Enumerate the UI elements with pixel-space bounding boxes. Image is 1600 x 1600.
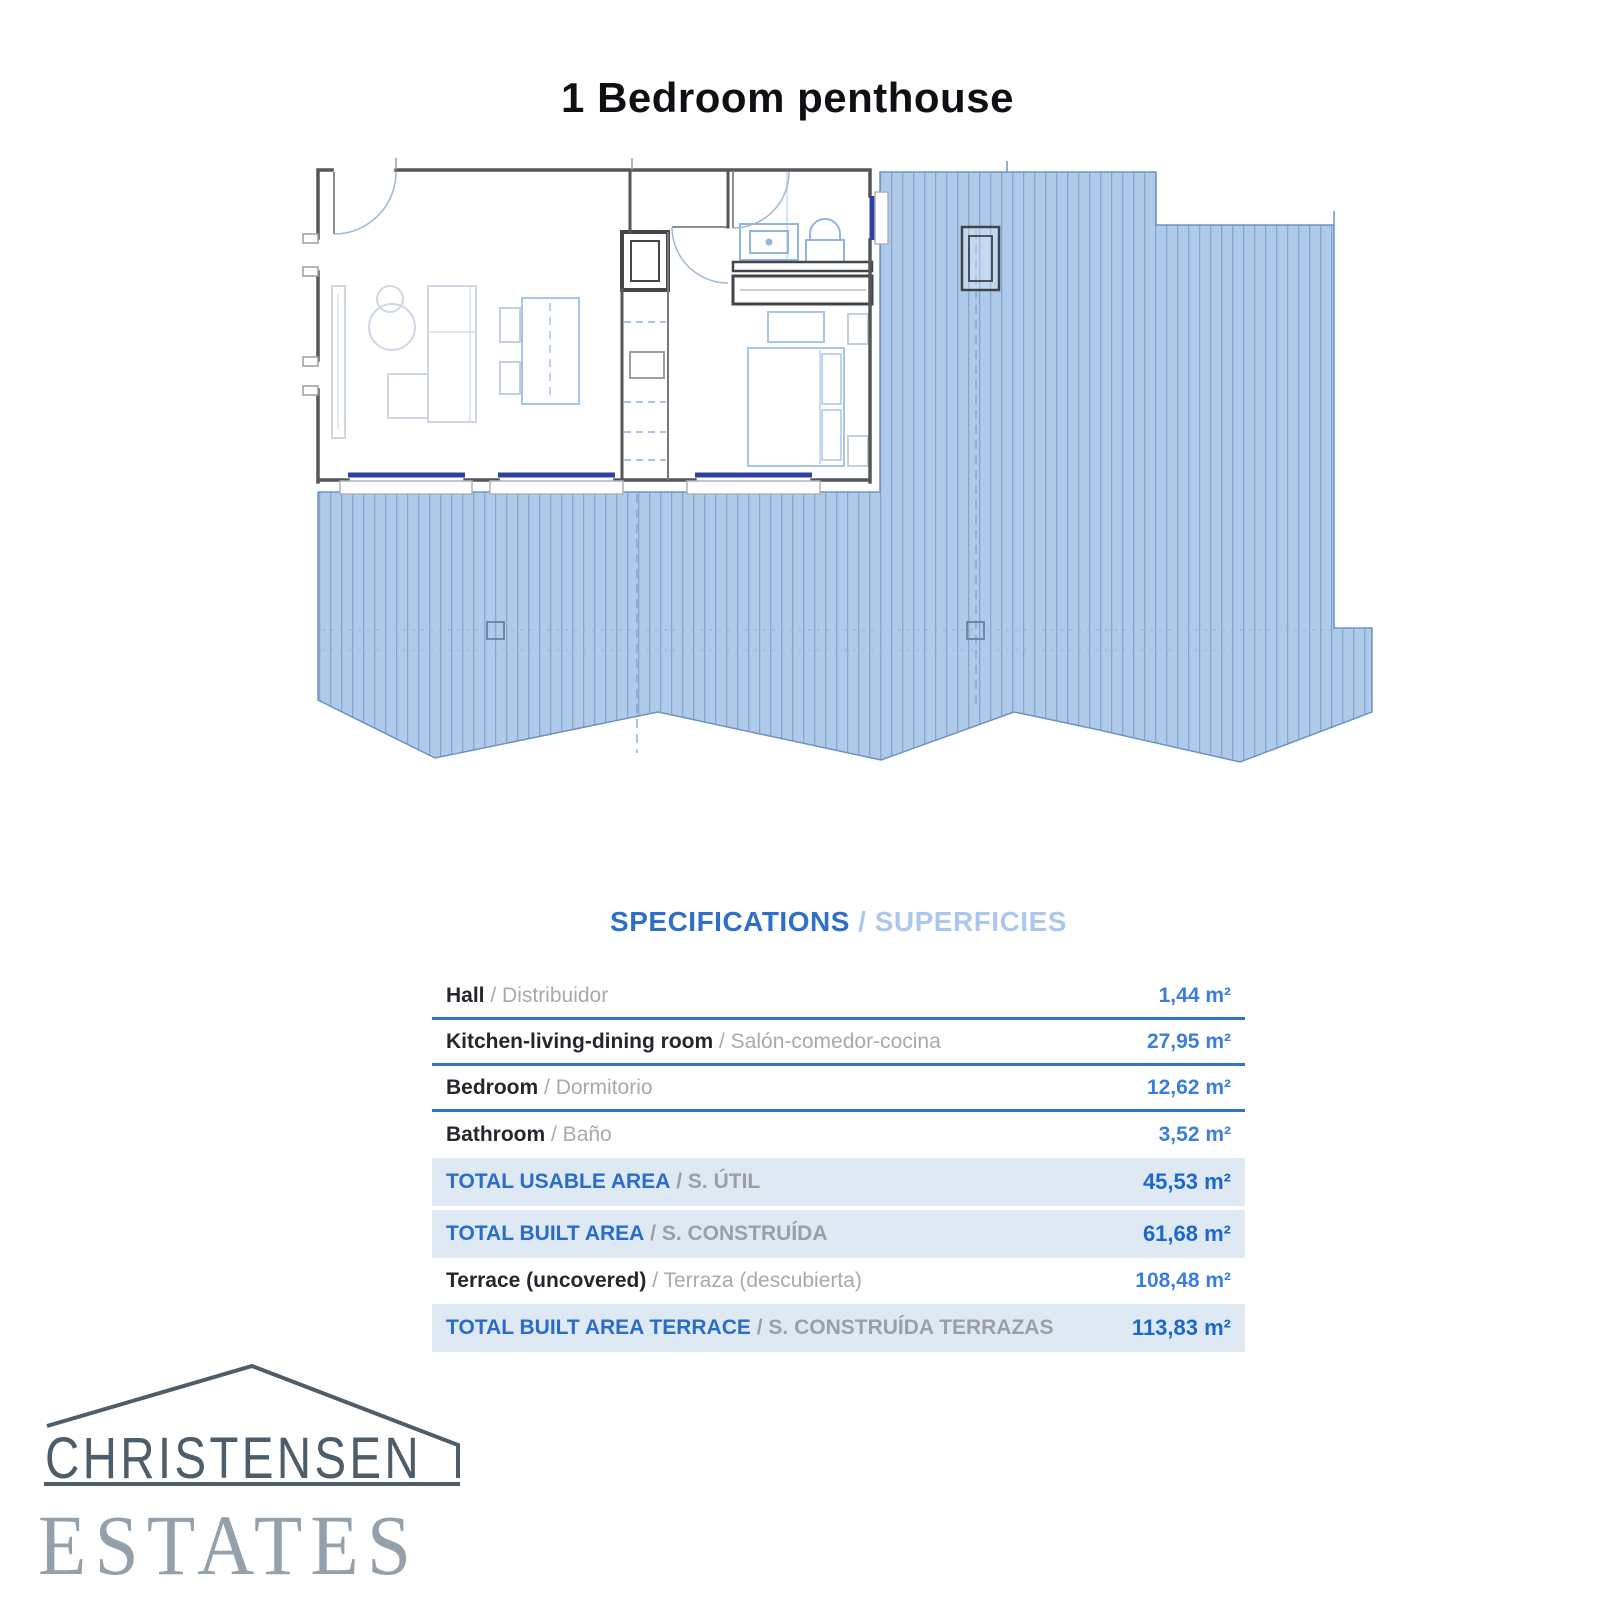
table-row: Kitchen-living-dining room / Salón-comed… bbox=[432, 1020, 1245, 1066]
row-label-es: / Baño bbox=[551, 1123, 612, 1146]
row-label-es: / Salón-comedor-cocina bbox=[719, 1030, 941, 1053]
company-logo: CHRISTENSEN ESTATES bbox=[0, 1355, 520, 1595]
row-label-es: / S. CONSTRUÍDA TERRAZAS bbox=[757, 1316, 1054, 1339]
row-label: Hall / Distribuidor bbox=[446, 984, 608, 1008]
row-label-es: / Terraza (descubierta) bbox=[652, 1269, 862, 1292]
row-label-en: Bedroom bbox=[446, 1076, 538, 1099]
row-label-en: Bathroom bbox=[446, 1123, 545, 1146]
table-row: Hall / Distribuidor 1,44 m² bbox=[432, 974, 1245, 1020]
table-row: Bedroom / Dormitorio 12,62 m² bbox=[432, 1066, 1245, 1112]
row-label: Terrace (uncovered) / Terraza (descubier… bbox=[446, 1269, 862, 1293]
row-label: TOTAL BUILT AREA TERRACE / S. CONSTRUÍDA… bbox=[446, 1316, 1053, 1340]
row-label: TOTAL USABLE AREA / S. ÚTIL bbox=[446, 1170, 760, 1194]
row-label-es: / Dormitorio bbox=[544, 1076, 653, 1099]
row-label: Bedroom / Dormitorio bbox=[446, 1076, 653, 1100]
table-row: TOTAL BUILT AREA / S. CONSTRUÍDA 61,68 m… bbox=[432, 1210, 1245, 1258]
row-value: 108,48 m² bbox=[1135, 1269, 1231, 1293]
row-label-es: / S. CONSTRUÍDA bbox=[650, 1222, 827, 1245]
row-value: 12,62 m² bbox=[1147, 1076, 1231, 1100]
row-value: 45,53 m² bbox=[1143, 1169, 1231, 1195]
row-label-en: TOTAL USABLE AREA bbox=[446, 1170, 670, 1193]
page-title: 1 Bedroom penthouse bbox=[0, 74, 1575, 122]
row-label: Bathroom / Baño bbox=[446, 1123, 612, 1147]
row-value: 61,68 m² bbox=[1143, 1221, 1231, 1247]
heading-secondary: SUPERFICIES bbox=[875, 906, 1067, 937]
bathroom-wall bbox=[733, 262, 872, 271]
logo-name-bottom: ESTATES bbox=[38, 1495, 419, 1595]
table-row: Terrace (uncovered) / Terraza (descubier… bbox=[432, 1258, 1245, 1304]
row-label-en: Terrace (uncovered) bbox=[446, 1269, 646, 1292]
row-label-en: TOTAL BUILT AREA bbox=[446, 1222, 644, 1245]
window-sill bbox=[687, 481, 820, 494]
row-label-es: / S. ÚTIL bbox=[676, 1170, 760, 1193]
row-value: 113,83 m² bbox=[1132, 1315, 1231, 1341]
brochure-page: 1 Bedroom penthouse bbox=[0, 0, 1600, 1600]
floor-plan bbox=[300, 150, 1390, 770]
row-label: Kitchen-living-dining room / Salón-comed… bbox=[446, 1030, 941, 1054]
table-row: TOTAL BUILT AREA TERRACE / S. CONSTRUÍDA… bbox=[432, 1304, 1245, 1352]
window-sill bbox=[875, 192, 888, 244]
window-sill bbox=[340, 481, 472, 494]
row-value: 3,52 m² bbox=[1159, 1123, 1231, 1147]
row-label-en: Hall bbox=[446, 984, 485, 1007]
heading-separator: / bbox=[850, 906, 875, 937]
terrace-planter bbox=[962, 227, 999, 290]
row-value: 27,95 m² bbox=[1147, 1030, 1231, 1054]
row-value: 1,44 m² bbox=[1159, 984, 1231, 1008]
window-sill bbox=[490, 481, 623, 494]
row-label-es: / Distribuidor bbox=[490, 984, 608, 1007]
row-label-en: TOTAL BUILT AREA TERRACE bbox=[446, 1316, 751, 1339]
table-row: TOTAL USABLE AREA / S. ÚTIL 45,53 m² bbox=[432, 1158, 1245, 1206]
row-label: TOTAL BUILT AREA / S. CONSTRUÍDA bbox=[446, 1222, 828, 1246]
table-row: Bathroom / Baño 3,52 m² bbox=[432, 1112, 1245, 1158]
row-label-en: Kitchen-living-dining room bbox=[446, 1030, 713, 1053]
apartment-floor bbox=[316, 166, 872, 484]
specifications-heading: SPECIFICATIONS / SUPERFICIES bbox=[432, 906, 1245, 938]
specifications-table: Hall / Distribuidor 1,44 m² Kitchen-livi… bbox=[432, 974, 1245, 1352]
heading-primary: SPECIFICATIONS bbox=[610, 906, 850, 937]
logo-divider bbox=[44, 1482, 460, 1486]
